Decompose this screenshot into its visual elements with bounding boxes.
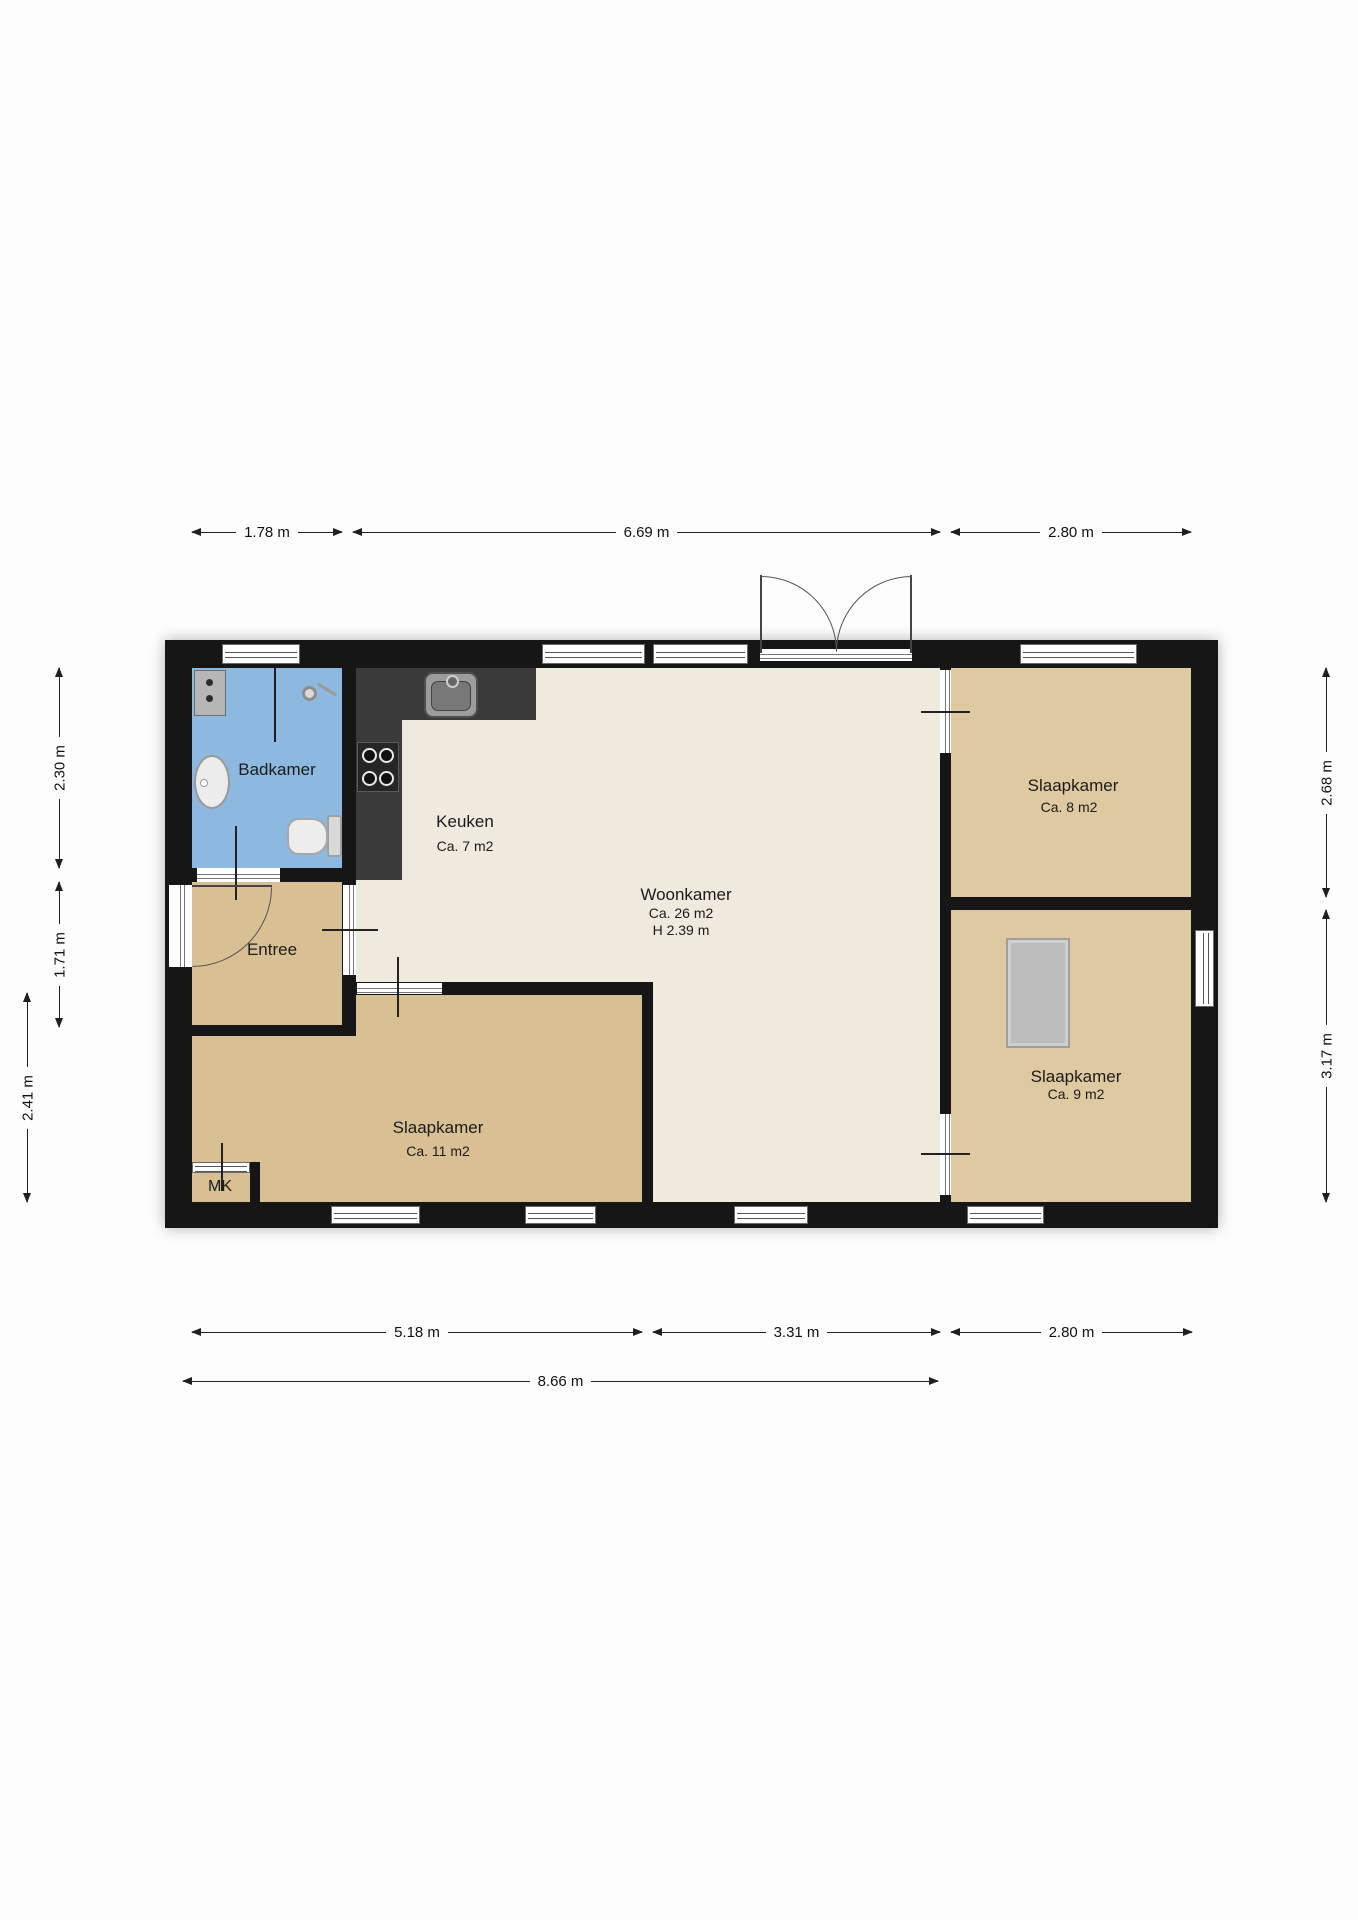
door-line-entry-living xyxy=(322,929,378,931)
window-top-bathroom xyxy=(222,644,300,664)
cabinet-knob xyxy=(206,679,213,686)
room-area-bedroom9: Ca. 9 m2 xyxy=(1048,1086,1105,1102)
double-door-left-arc xyxy=(761,576,837,652)
window-bottom-bedroom11-b xyxy=(525,1206,596,1224)
room-label-bedroom9: Slaapkamer xyxy=(1031,1067,1122,1087)
wall-meter-closet-right xyxy=(250,1162,260,1202)
room-label-meter-closet: MK xyxy=(208,1178,232,1196)
dimension-top-1-label: 1.78 m xyxy=(236,524,298,541)
window-top-living xyxy=(653,644,748,664)
dimension-top-3-label: 2.80 m xyxy=(1040,524,1102,541)
door-line-bedroom8 xyxy=(921,711,970,713)
shower-head-fixture xyxy=(302,686,317,701)
door-opening-bathroom xyxy=(197,868,280,882)
toilet-tank xyxy=(327,815,342,857)
door-line-bedroom11 xyxy=(397,957,399,1017)
room-label-bathroom: Badkamer xyxy=(238,760,315,780)
door-opening-bedroom11 xyxy=(357,983,442,994)
stove-burner xyxy=(362,748,377,763)
stove-fixture xyxy=(357,742,399,792)
room-height-living: H 2.39 m xyxy=(653,922,710,938)
toilet-fixture xyxy=(287,818,328,855)
dimension-bottom-3-label: 2.80 m xyxy=(1041,1324,1103,1341)
wall-entry-bottom xyxy=(192,1025,356,1036)
cabinet-knob xyxy=(206,695,213,702)
room-area-bedroom8: Ca. 8 m2 xyxy=(1041,799,1098,815)
window-top-kitchen xyxy=(542,644,645,664)
dimension-top-2-label: 6.69 m xyxy=(616,524,678,541)
dimension-bottom-2-label: 3.31 m xyxy=(766,1324,828,1341)
window-top-bedroom8 xyxy=(1020,644,1137,664)
room-area-bedroom11: Ca. 11 m2 xyxy=(406,1143,470,1159)
dimension-right-2-label: 3.17 m xyxy=(1319,1025,1336,1087)
floor-bedroom-bottomright xyxy=(951,910,1192,1202)
dimension-left-1-label: 2.30 m xyxy=(52,737,69,799)
wall-bathroom-entry-right xyxy=(342,668,356,1035)
window-bottom-bedroom11-a xyxy=(331,1206,420,1224)
dimension-right-1-label: 2.68 m xyxy=(1319,752,1336,814)
kitchen-sink-fixture xyxy=(424,672,478,718)
room-label-bedroom8: Slaapkamer xyxy=(1028,776,1119,796)
floorplan-page: Badkamer Keuken Ca. 7 m2 Woonkamer Ca. 2… xyxy=(0,0,1358,1920)
dimension-bottom-1-label: 5.18 m xyxy=(386,1324,448,1341)
dimension-left-3-label: 2.41 m xyxy=(20,1067,37,1129)
stove-burner xyxy=(362,771,377,786)
window-bottom-bedroom9 xyxy=(967,1206,1044,1224)
window-right-bedroom9 xyxy=(1195,930,1214,1007)
sink-drain xyxy=(200,779,208,787)
room-label-living: Woonkamer xyxy=(640,885,731,905)
front-door-opening xyxy=(169,885,192,967)
window-bottom-living xyxy=(734,1206,808,1224)
shower-screen xyxy=(274,668,276,742)
double-door-right-arc xyxy=(836,576,912,652)
washbasin-cabinet-fixture xyxy=(194,670,226,716)
room-area-kitchen: Ca. 7 m2 xyxy=(437,838,494,854)
stove-burner xyxy=(379,771,394,786)
dimension-bottom-total-label: 8.66 m xyxy=(530,1373,592,1390)
stove-burner xyxy=(379,748,394,763)
room-label-bedroom11: Slaapkamer xyxy=(393,1118,484,1138)
floor-bedroom-left-b xyxy=(356,995,642,1202)
wall-bedroom-left-right xyxy=(642,982,653,1202)
room-label-kitchen: Keuken xyxy=(436,812,494,832)
bathroom-sink-fixture xyxy=(194,755,230,809)
dimension-left-2-label: 1.71 m xyxy=(52,924,69,986)
wall-between-right-bedrooms xyxy=(951,897,1192,910)
kitchen-sink-tap xyxy=(446,675,459,688)
room-area-living: Ca. 26 m2 xyxy=(649,905,714,921)
room-label-entry: Entree xyxy=(247,940,297,960)
door-line-bedroom9 xyxy=(921,1153,970,1155)
closet-fixture xyxy=(1006,938,1070,1048)
wall-outer-bottom xyxy=(165,1202,1218,1228)
